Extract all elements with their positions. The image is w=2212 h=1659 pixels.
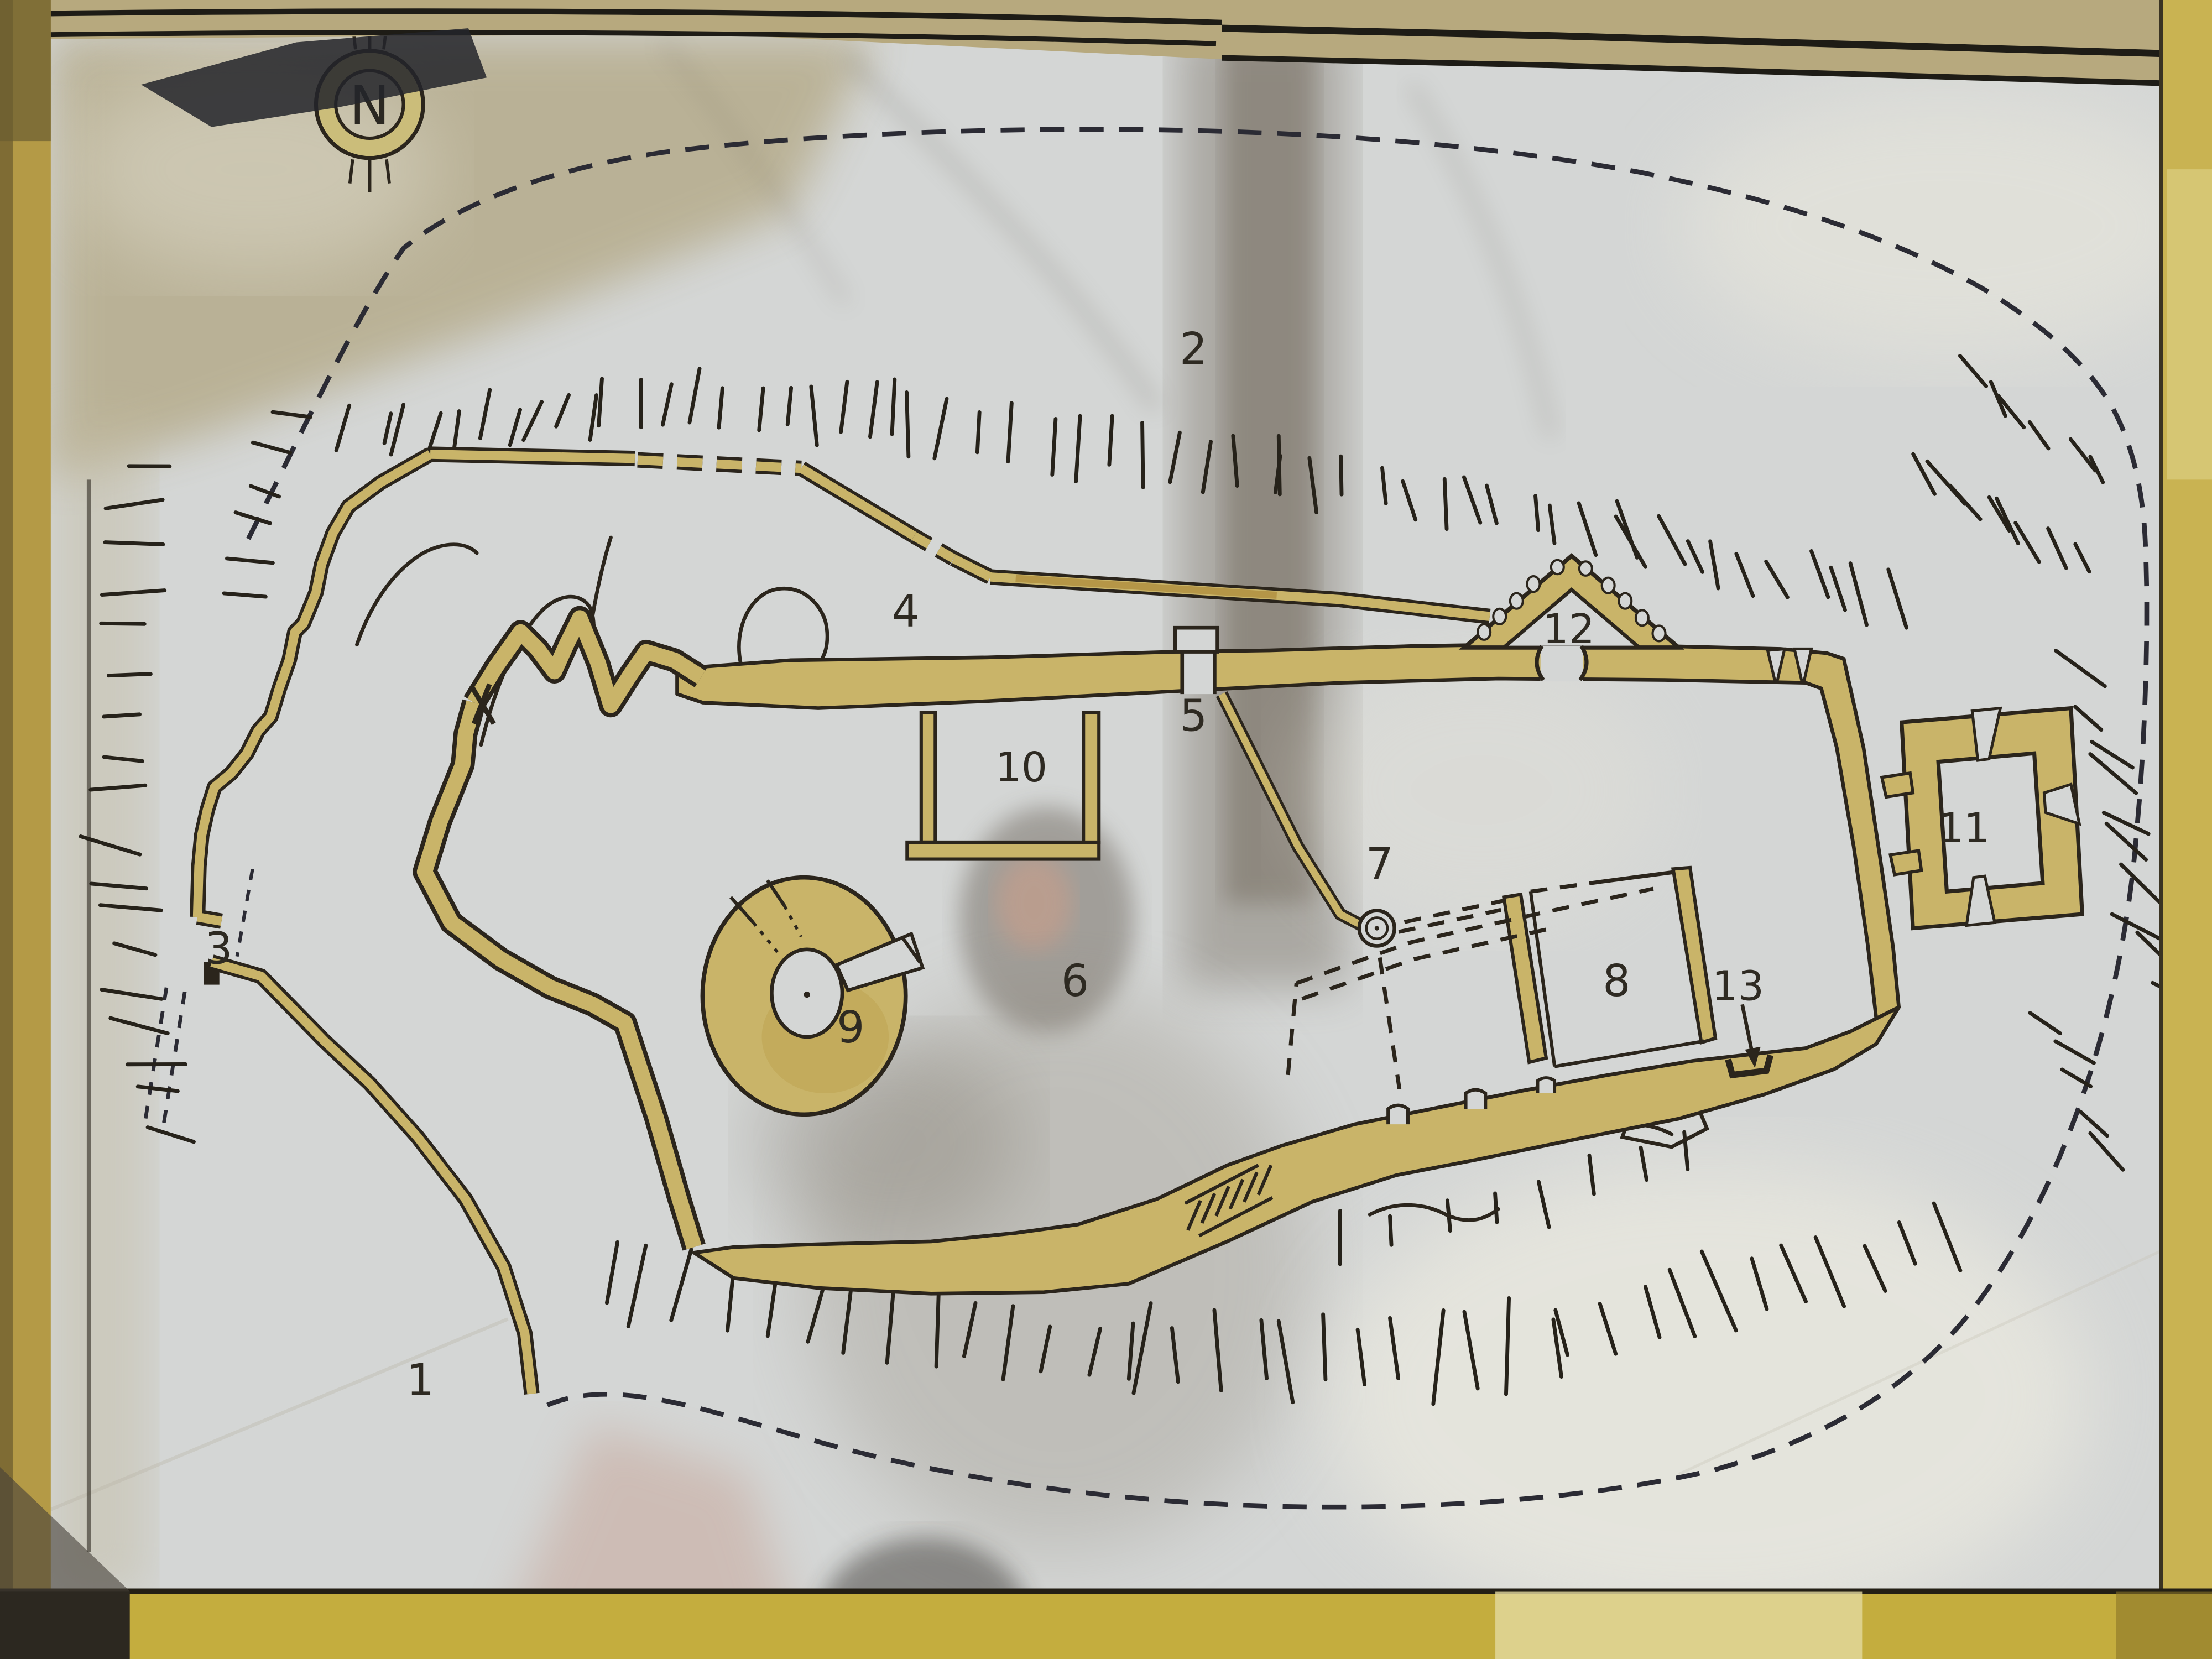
castle-site-plan-photo: N 1 2 3 4 5 6 7 8 9 10 11 12 13 [0, 0, 2212, 1659]
frame-bottom [0, 1592, 2212, 1659]
hatch-mark [1323, 1314, 1326, 1380]
hatch-mark [977, 412, 979, 452]
plan-label-1: 1 [406, 1355, 434, 1406]
doorway [1388, 1105, 1408, 1124]
plan-label-4: 4 [892, 586, 920, 637]
plan-label-11: 11 [1938, 805, 1990, 852]
plan-label-2: 2 [1180, 324, 1207, 374]
plan-label-3: 3 [205, 923, 232, 974]
hatch-mark [1390, 1216, 1392, 1245]
hatch-mark [101, 623, 145, 624]
hatch-mark [907, 392, 909, 456]
frame-bottom-left-dark [0, 1592, 130, 1659]
hatch-mark [892, 379, 895, 434]
plan-label-12: 12 [1543, 606, 1595, 653]
gate5-gatehouse [1175, 628, 1218, 651]
sunlight-patch [1326, 1164, 2088, 1630]
plan-label-7: 7 [1366, 838, 1394, 889]
hatch-mark [1495, 1193, 1497, 1222]
hatch-mark [936, 1295, 938, 1366]
plan-label-6: 6 [1061, 956, 1089, 1006]
doorway [1538, 1078, 1555, 1093]
hatch-mark [105, 542, 163, 545]
hatch-mark [1142, 422, 1144, 487]
hatch-mark [1279, 436, 1280, 494]
plan-label-8: 8 [1603, 956, 1630, 1006]
site-plan-svg: N 1 2 3 4 5 6 7 8 9 10 11 12 13 [0, 0, 2212, 1659]
gate5-opening [1181, 648, 1216, 694]
hatch-mark [104, 714, 140, 717]
well7 [1359, 911, 1395, 946]
plan-label-9: 9 [837, 1002, 864, 1053]
plan-label-13: 13 [1712, 963, 1764, 1010]
glare-patch [1298, 656, 1665, 924]
gate5 [1175, 628, 1218, 694]
plan-label-10: 10 [995, 744, 1047, 791]
hatch-mark [1341, 456, 1342, 494]
plan-label-5: 5 [1180, 690, 1207, 741]
hatch-mark [108, 674, 150, 676]
left-margin-tint [51, 423, 150, 1594]
keep-center-dot [804, 992, 810, 998]
face-reflection [996, 855, 1072, 951]
glare-patch [1679, 92, 2212, 360]
doorway [1466, 1090, 1486, 1109]
hatch-mark [1444, 479, 1447, 529]
